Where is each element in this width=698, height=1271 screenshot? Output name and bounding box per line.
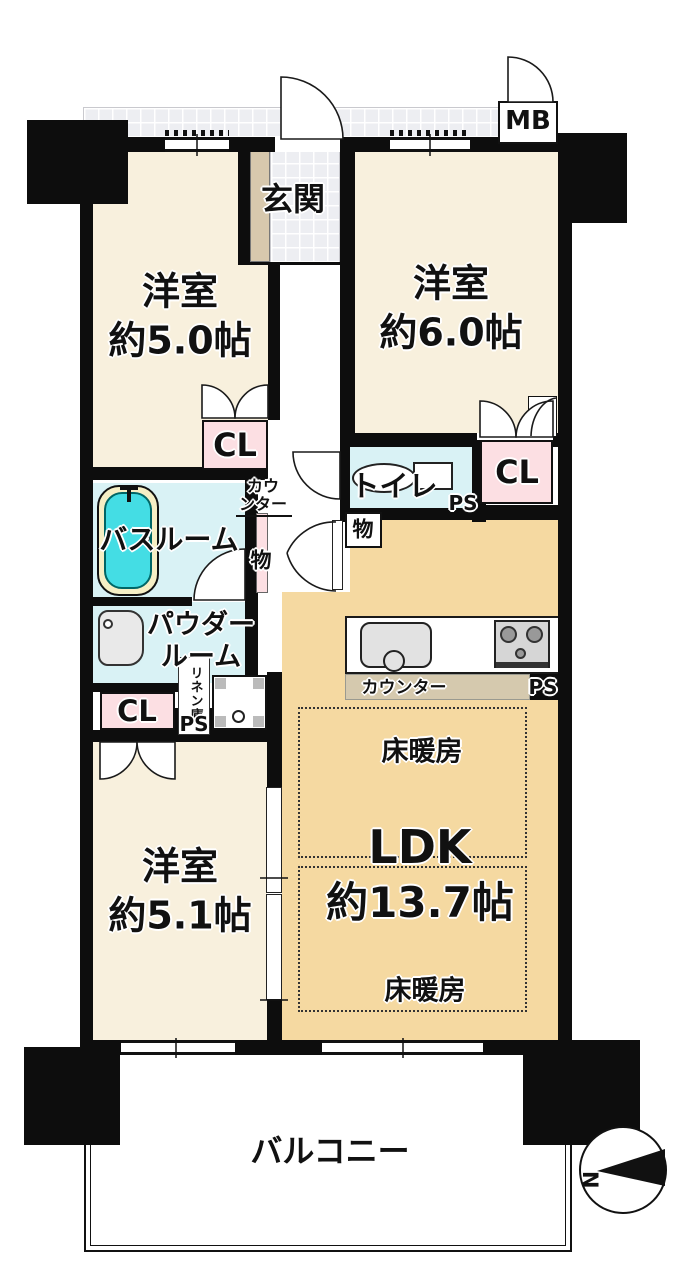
wall-room1-entrance xyxy=(238,137,250,265)
ps-toilet-label: PS xyxy=(448,490,477,516)
window-bedroom3-balcony xyxy=(121,1040,235,1055)
meter-box-label: MB xyxy=(505,105,551,139)
ldk-door-leaf xyxy=(332,520,343,590)
ps-kitchen-label: PS xyxy=(528,674,557,700)
ps-linen-label: PS xyxy=(179,711,208,737)
washer-pad xyxy=(253,716,264,727)
room-size: 約13.7帖 xyxy=(326,877,514,930)
bathroom-label: バスルーム xyxy=(99,522,238,558)
washing-machine-icon xyxy=(212,675,267,730)
window-grille-bedroom1 xyxy=(165,130,229,136)
storage-hall-label: 物 xyxy=(251,547,272,574)
bedroom-top-left-label: 洋室 約5.0帖 xyxy=(108,268,251,367)
room-name: LDK xyxy=(326,819,514,877)
closet-bottom-left-label: CL xyxy=(117,693,157,731)
balcony-label: バルコニー xyxy=(250,1131,409,1173)
hall-counter-line2: ンター xyxy=(239,496,287,514)
washbasin-faucet xyxy=(103,619,113,629)
entrance-opening xyxy=(275,137,340,152)
wall-left xyxy=(80,204,93,1055)
washer-pad xyxy=(215,678,226,689)
stove-burner xyxy=(500,626,517,643)
hall-counter-line1: カウ xyxy=(239,478,287,496)
room-name: 洋室 xyxy=(379,260,522,309)
wall-cl2-bottom xyxy=(485,505,558,520)
mb-door-arc xyxy=(508,57,553,102)
wall-partition-a xyxy=(267,742,282,787)
window-ldk-balcony xyxy=(322,1040,483,1055)
compass-north-label: N xyxy=(578,1171,602,1189)
bathtub-faucet xyxy=(127,486,131,502)
room-size: 約5.0帖 xyxy=(108,317,251,366)
bedroom-bottom-left-label: 洋室 約5.1帖 xyxy=(108,843,251,942)
washer-drain xyxy=(232,710,245,723)
window-bedroom2 xyxy=(390,137,470,152)
stove-grill xyxy=(496,662,548,668)
storage-toilet-label: 物 xyxy=(353,516,374,543)
room-name: 洋室 xyxy=(108,268,251,317)
closet-top-right-label: CL xyxy=(495,452,539,494)
sliding-door-panel xyxy=(266,787,282,893)
stove-burner xyxy=(515,648,526,659)
floor-heating-top-label: 床暖房 xyxy=(382,734,463,769)
room-size: 約5.1帖 xyxy=(108,892,251,941)
washer-pad xyxy=(215,716,226,727)
entrance-label: 玄関 xyxy=(261,179,325,221)
pillar-bottom-left xyxy=(24,1047,120,1145)
hall-counter-label: カウ ンター xyxy=(239,478,287,515)
sliding-door-panel xyxy=(266,894,282,1000)
wall-washer-right xyxy=(267,672,282,742)
window-grille-bedroom2 xyxy=(390,130,470,136)
corridor-upper xyxy=(280,265,340,420)
pillar-top-right xyxy=(558,133,627,223)
floor-heating-bottom-label: 床暖房 xyxy=(385,973,466,1008)
kitchen-sink-drain xyxy=(383,650,405,672)
floor-plan: N MB 玄関 洋室 約5.0帖 洋室 約6.0帖 洋室 約5.1帖 LDK 約… xyxy=(0,0,698,1271)
right-wall-door-notch xyxy=(528,396,557,437)
bedroom-top-right-label: 洋室 約6.0帖 xyxy=(379,260,522,359)
wall-right xyxy=(558,137,572,1055)
ldk-label: LDK 約13.7帖 xyxy=(326,819,514,929)
wall-powder-cl xyxy=(93,683,178,692)
powder-room-label: パウダー ルーム xyxy=(147,610,255,675)
room-size: 約6.0帖 xyxy=(379,309,522,358)
closet-top-left-label: CL xyxy=(213,425,257,467)
washer-pad xyxy=(253,678,264,689)
common-hallway-tiles xyxy=(83,107,558,138)
wall-room2-bottom-a xyxy=(355,433,477,447)
pillar-top-left xyxy=(27,120,128,204)
corridor-mid xyxy=(268,420,340,475)
window-bedroom1 xyxy=(165,137,229,152)
entrance-step xyxy=(250,262,340,265)
powder-line1: パウダー xyxy=(147,610,255,642)
toilet-label: トイレ xyxy=(350,468,437,506)
wall-corridor-room1 xyxy=(268,265,280,420)
wall-bath-powder xyxy=(93,597,192,606)
stove-burner xyxy=(526,626,543,643)
washbasin-icon xyxy=(98,610,144,666)
kitchen-counter-label: カウンター xyxy=(362,677,447,699)
wall-entrance-room2 xyxy=(340,137,355,447)
wall-partition-b xyxy=(267,1000,282,1045)
pillar-bottom-right xyxy=(523,1040,640,1145)
room-name: 洋室 xyxy=(108,843,251,892)
wall-under-mb xyxy=(497,144,558,152)
